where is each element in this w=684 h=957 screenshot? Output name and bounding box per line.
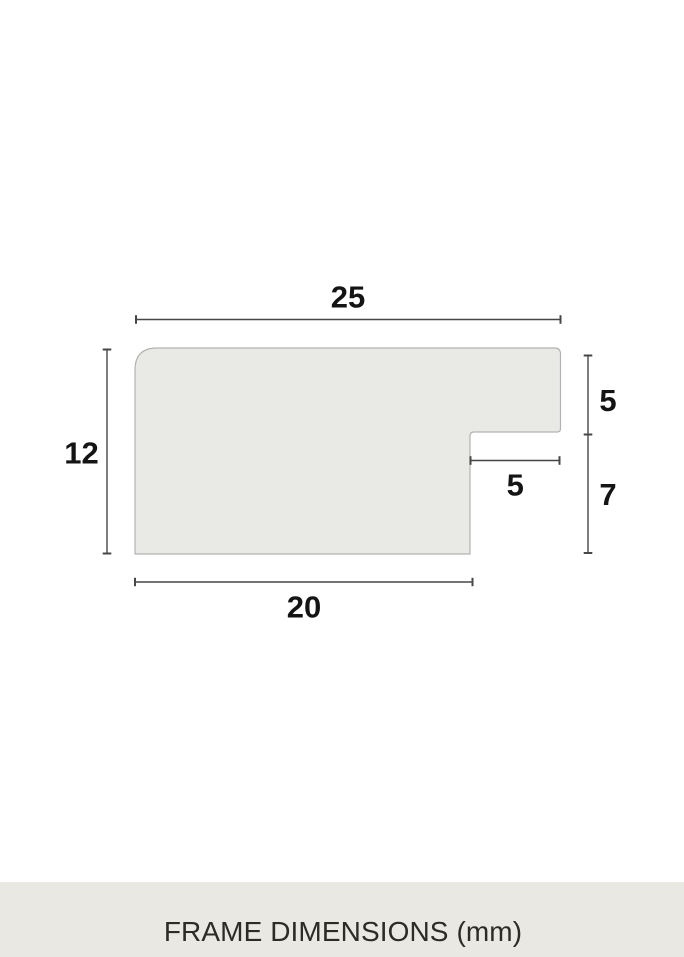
svg-text:7: 7 <box>599 477 616 512</box>
svg-text:5: 5 <box>507 468 524 503</box>
svg-text:20: 20 <box>287 590 321 625</box>
svg-text:25: 25 <box>331 280 365 315</box>
svg-text:FRAME DIMENSIONS (mm): FRAME DIMENSIONS (mm) <box>164 916 522 947</box>
svg-text:5: 5 <box>599 383 616 418</box>
svg-text:12: 12 <box>64 436 98 471</box>
